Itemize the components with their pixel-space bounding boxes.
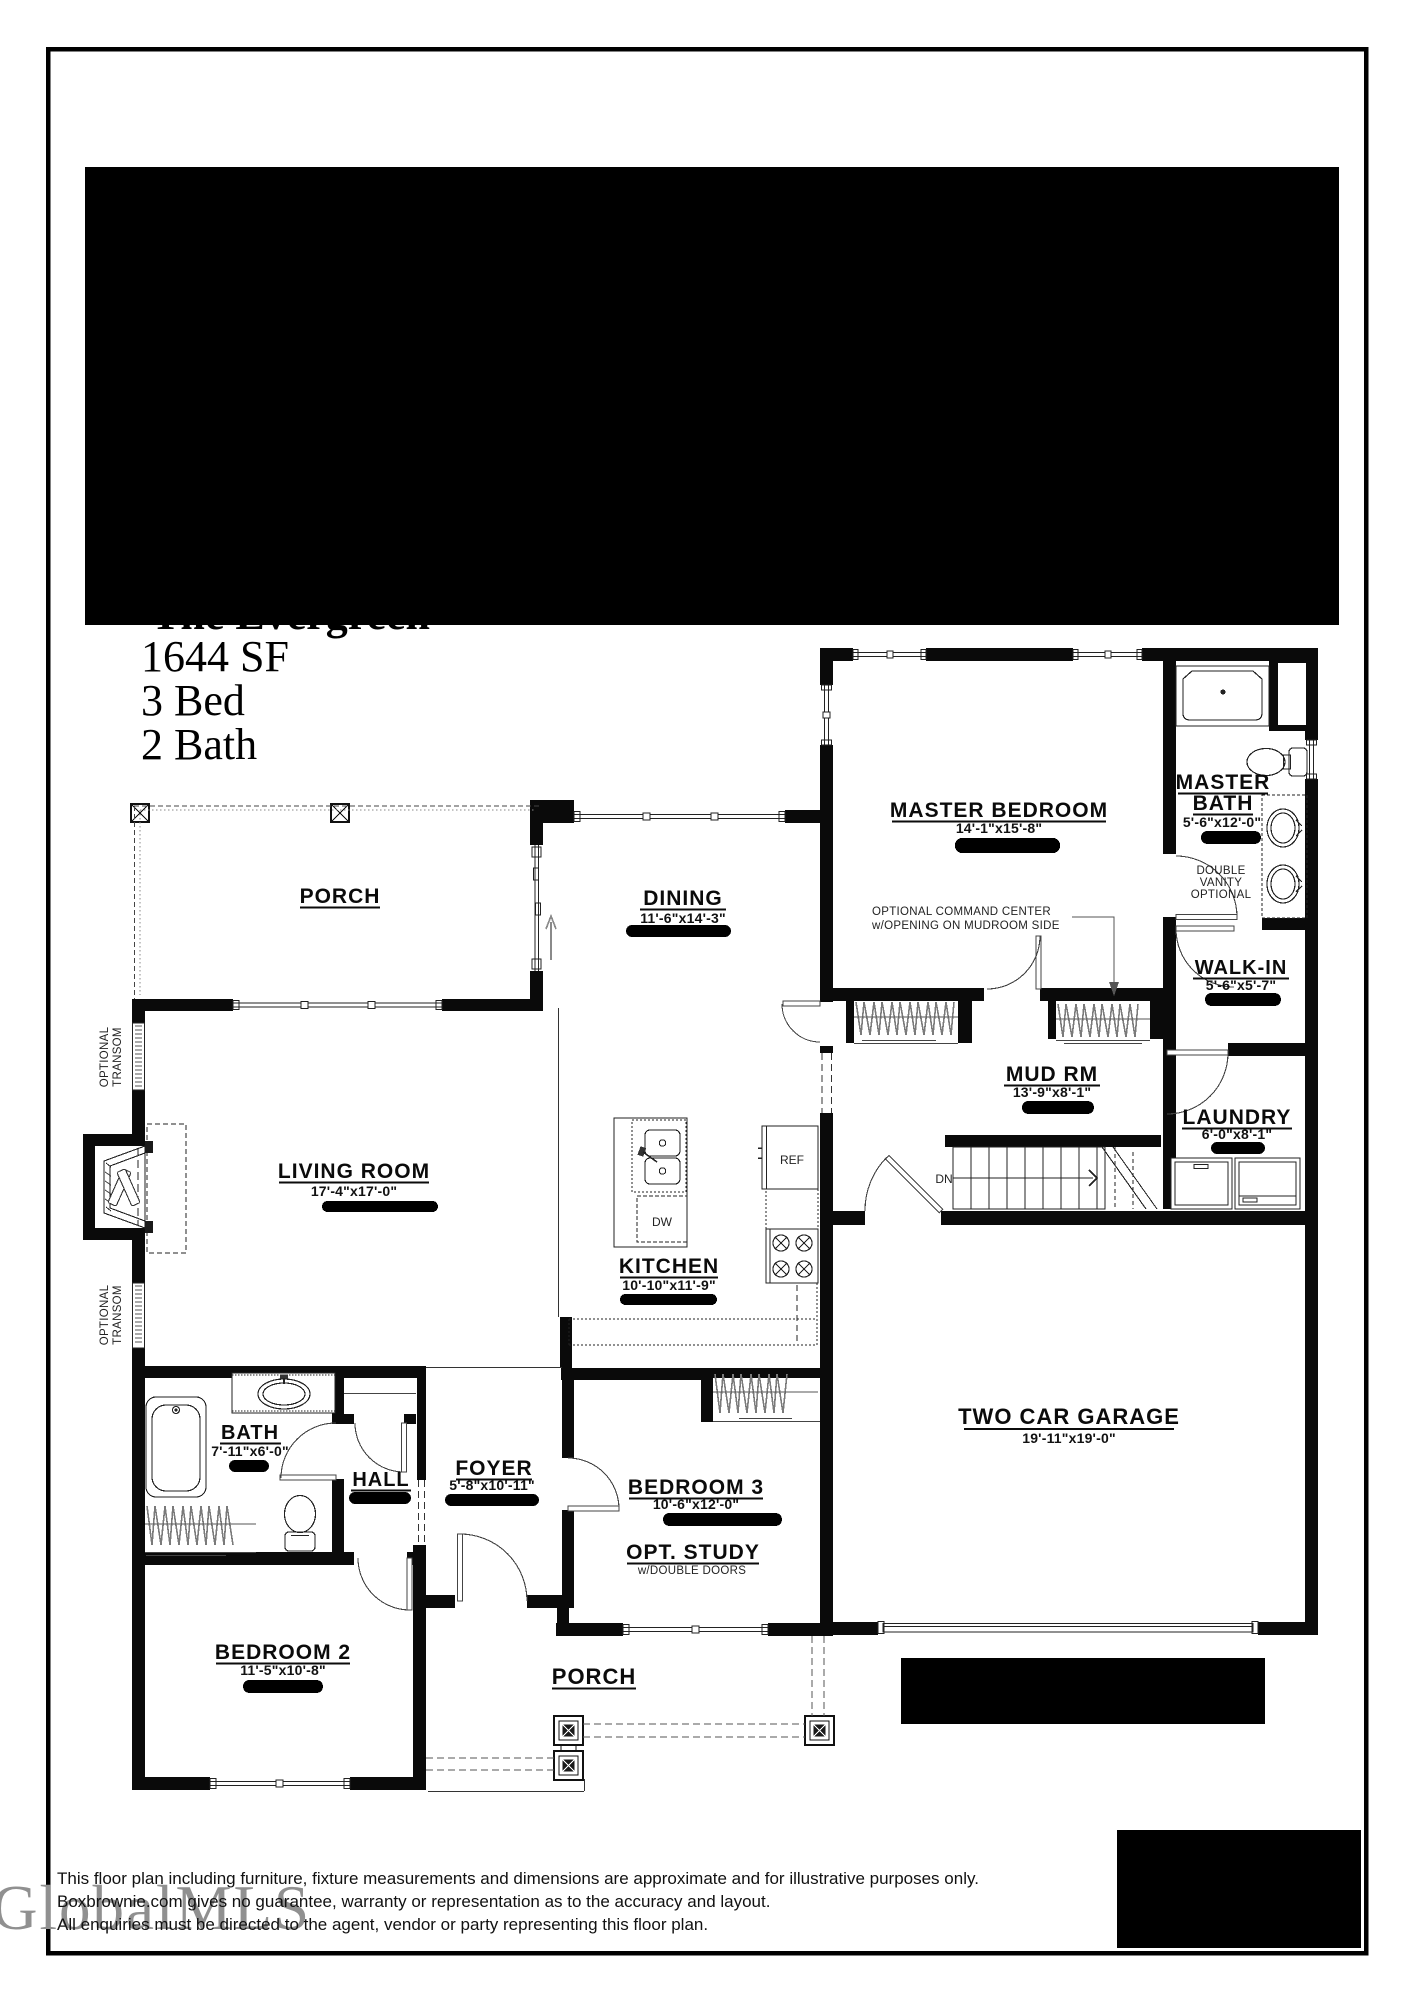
svg-text:Boxbrownie.com gives no guaran: Boxbrownie.com gives no guarantee, warra… [57,1892,770,1911]
svg-text:OPTIONAL: OPTIONAL [99,1026,111,1087]
svg-text:5'-6"x12'-0": 5'-6"x12'-0" [1183,814,1261,830]
svg-text:13'-9"x8'-1": 13'-9"x8'-1" [1013,1084,1091,1100]
svg-text:17'-4"x17'-0": 17'-4"x17'-0" [311,1183,397,1199]
svg-text:5'-6"x5'-7": 5'-6"x5'-7" [1206,977,1276,993]
svg-text:OPTIONAL COMMAND CENTER: OPTIONAL COMMAND CENTER [872,906,1051,918]
svg-text:3 Bed: 3 Bed [141,676,245,725]
svg-text:MASTER BEDROOM: MASTER BEDROOM [890,799,1108,822]
svg-text:7'-11"x6'-0": 7'-11"x6'-0" [211,1443,289,1459]
svg-text:MASTER: MASTER [1176,771,1271,794]
svg-text:6'-0"x8'-1": 6'-0"x8'-1" [1202,1126,1272,1142]
svg-text:BATH: BATH [221,1422,279,1444]
svg-text:2 Bath: 2 Bath [141,720,257,769]
svg-text:14'-1"x15'-8": 14'-1"x15'-8" [956,820,1042,836]
svg-text:OPT. STUDY: OPT. STUDY [626,1541,760,1564]
svg-text:PORCH: PORCH [300,885,381,908]
svg-text:TWO CAR GARAGE: TWO CAR GARAGE [958,1404,1180,1429]
svg-text:VANITY: VANITY [1200,877,1243,889]
svg-text:w/DOUBLE DOORS: w/DOUBLE DOORS [637,1565,746,1577]
svg-text:All enquiries must be directed: All enquiries must be directed to the ag… [57,1915,708,1934]
svg-text:1644 SF: 1644 SF [141,632,289,681]
svg-text:DOUBLE: DOUBLE [1196,865,1245,877]
svg-text:WALK-IN: WALK-IN [1195,957,1288,979]
svg-text:This floor plan including furn: This floor plan including furniture, fix… [57,1869,979,1888]
svg-text:TRANSOM: TRANSOM [112,1027,124,1087]
svg-text:BEDROOM 2: BEDROOM 2 [215,1641,351,1664]
svg-text:19'-11"x19'-0": 19'-11"x19'-0" [1022,1430,1116,1446]
svg-text:PORCH: PORCH [552,1664,636,1689]
svg-text:w/OPENING ON MUDROOM SIDE: w/OPENING ON MUDROOM SIDE [871,920,1060,932]
svg-text:DN: DN [935,1172,952,1186]
svg-text:11'-5"x10'-8": 11'-5"x10'-8" [240,1662,326,1678]
svg-text:HALL: HALL [352,1469,409,1491]
svg-text:DW: DW [652,1215,673,1229]
svg-text:10'-6"x12'-0": 10'-6"x12'-0" [653,1496,739,1512]
svg-text:BATH: BATH [1193,792,1254,815]
svg-text:OPTIONAL: OPTIONAL [99,1284,111,1345]
svg-text:KITCHEN: KITCHEN [619,1255,719,1278]
svg-text:OPTIONAL: OPTIONAL [1191,889,1252,901]
svg-text:10'-10"x11'-9": 10'-10"x11'-9" [622,1277,716,1293]
svg-text:MUD RM: MUD RM [1006,1063,1098,1086]
svg-text:REF: REF [780,1153,804,1167]
svg-text:DINING: DINING [643,887,723,910]
svg-text:5'-8"x10'-11": 5'-8"x10'-11" [449,1477,535,1493]
svg-text:11'-6"x14'-3": 11'-6"x14'-3" [640,910,726,926]
svg-text:LIVING ROOM: LIVING ROOM [278,1160,430,1183]
svg-text:TRANSOM: TRANSOM [112,1285,124,1345]
